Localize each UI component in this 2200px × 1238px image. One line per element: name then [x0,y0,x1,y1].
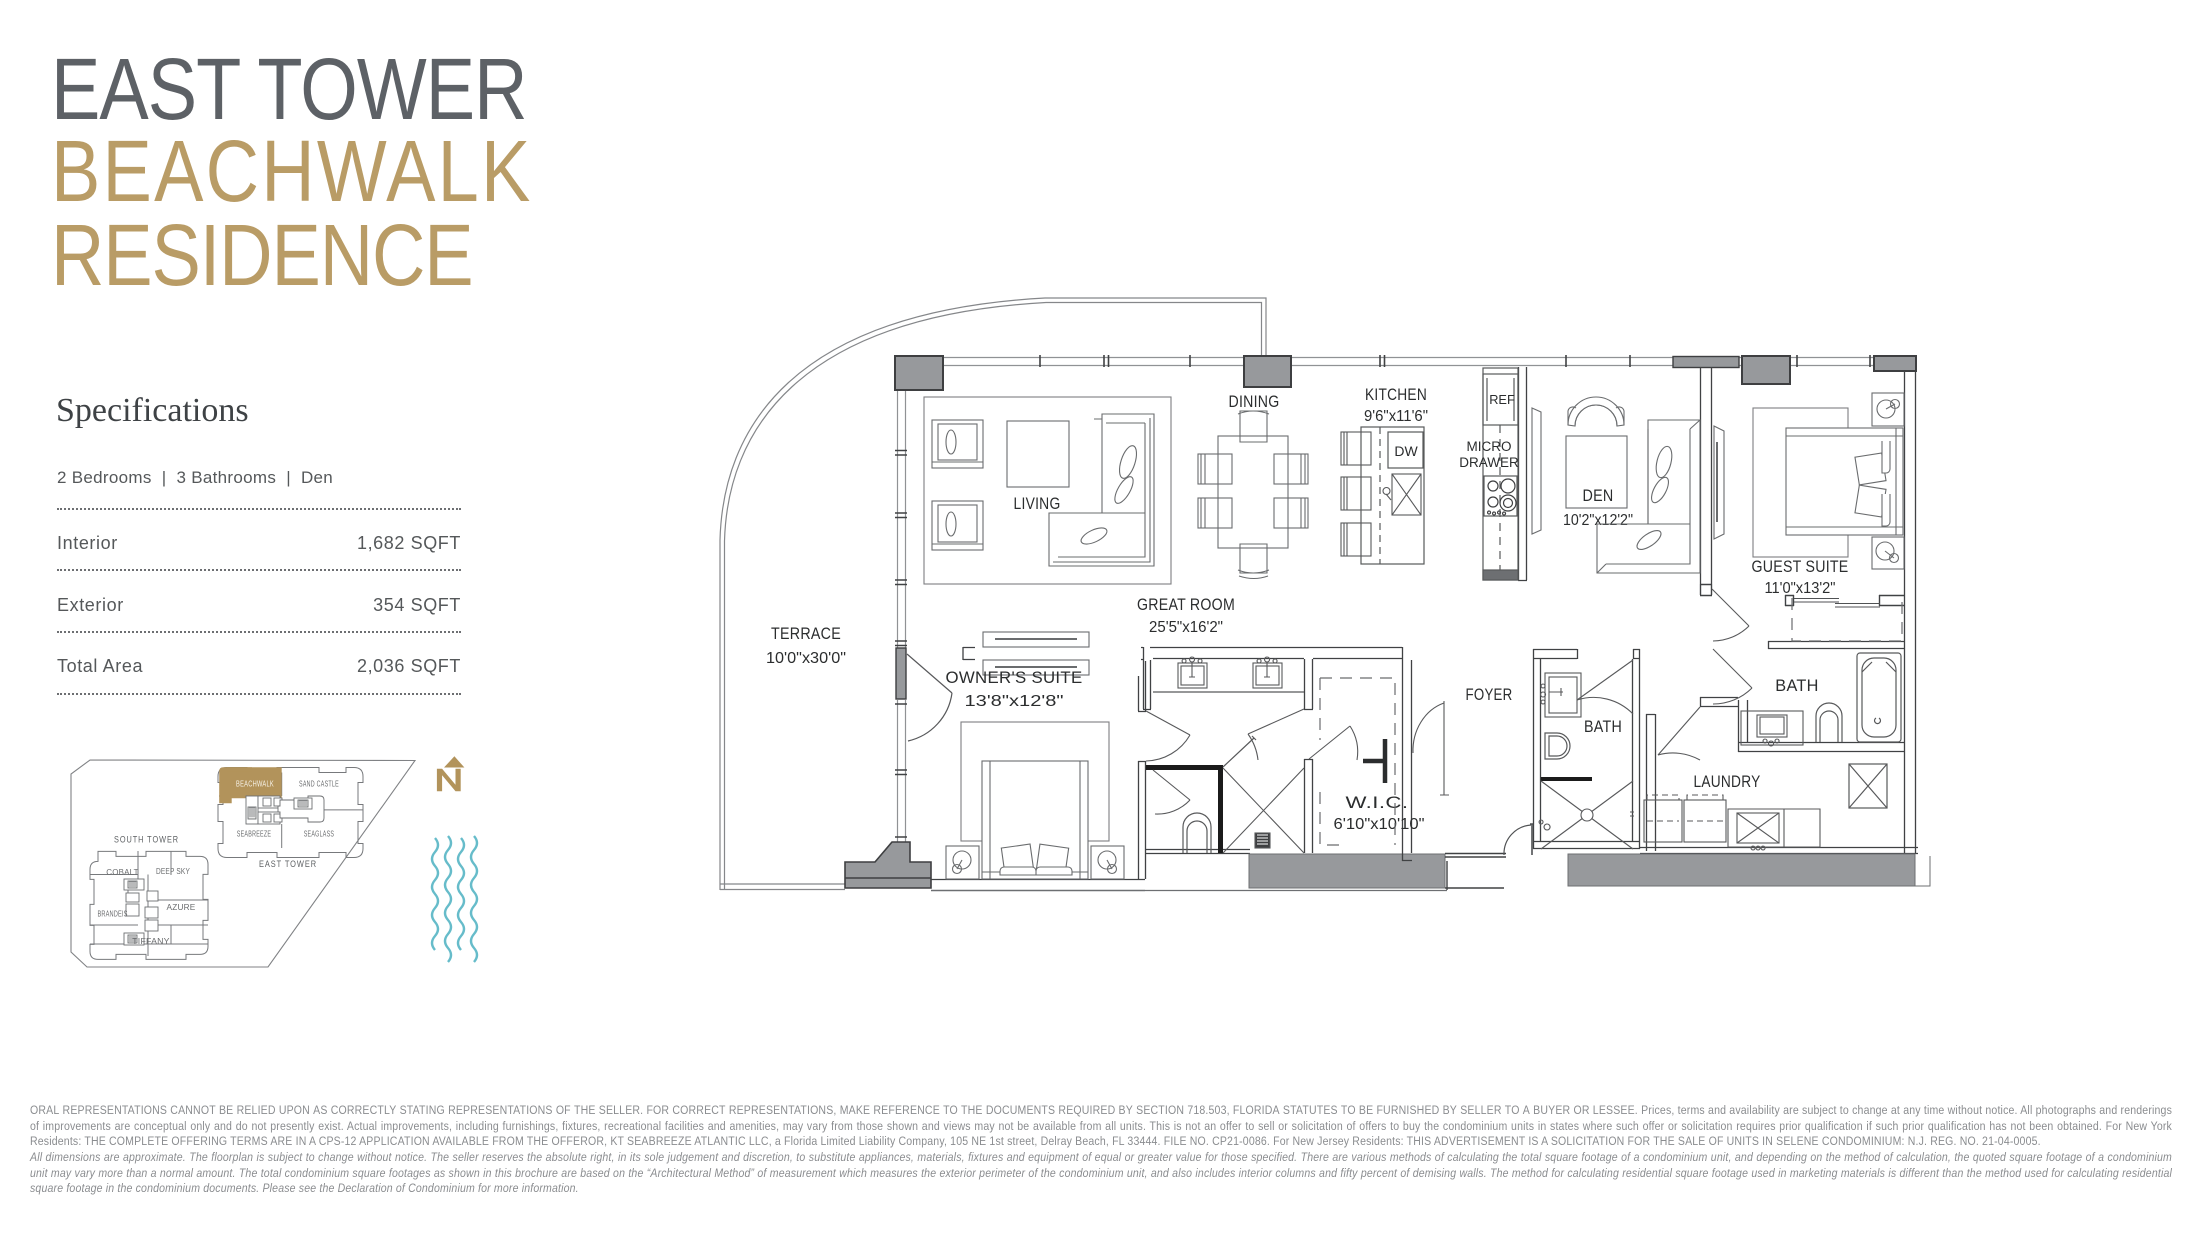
svg-text:6'10"x10'10": 6'10"x10'10" [1334,816,1425,833]
svg-text:TIFFANY: TIFFANY [132,937,170,946]
svg-text:TERRACE: TERRACE [771,625,841,643]
svg-text:13'8"x12'8": 13'8"x12'8" [965,693,1064,710]
svg-text:LIVING: LIVING [1014,495,1061,513]
svg-text:25'5"x16'2": 25'5"x16'2" [1149,619,1223,636]
svg-text:BATH: BATH [1584,718,1622,736]
svg-text:BRANDEIS: BRANDEIS [98,910,128,919]
svg-text:EAST TOWER: EAST TOWER [259,859,317,870]
svg-text:DEN: DEN [1583,487,1614,505]
svg-text:AZURE: AZURE [167,903,196,912]
svg-text:SEABREEZE: SEABREEZE [237,830,272,839]
svg-text:9'6"x11'6": 9'6"x11'6" [1364,408,1428,425]
svg-text:GREAT ROOM: GREAT ROOM [1137,596,1235,614]
svg-text:10'2"x12'2": 10'2"x12'2" [1563,512,1633,529]
svg-text:DEEP SKY: DEEP SKY [156,867,190,876]
svg-text:10'0"x30'0": 10'0"x30'0" [766,650,846,667]
svg-text:FOYER: FOYER [1466,686,1513,704]
svg-text:BATH: BATH [1775,677,1818,695]
svg-text:W.I.C.: W.I.C. [1346,794,1409,812]
svg-text:DW: DW [1394,443,1418,459]
svg-text:GUEST SUITE: GUEST SUITE [1752,558,1849,576]
svg-text:REF: REF [1489,392,1515,407]
svg-text:DRAWER: DRAWER [1459,455,1519,470]
svg-text:SAND CASTLE: SAND CASTLE [299,780,339,789]
svg-text:MICRO: MICRO [1467,439,1512,454]
svg-text:SOUTH TOWER: SOUTH TOWER [114,835,179,846]
svg-text:SEAGLASS: SEAGLASS [304,830,335,839]
svg-text:LAUNDRY: LAUNDRY [1694,773,1761,791]
svg-text:KITCHEN: KITCHEN [1365,386,1427,404]
svg-text:OWNER'S SUITE: OWNER'S SUITE [946,669,1083,687]
svg-text:11'0"x13'2": 11'0"x13'2" [1765,580,1836,597]
svg-text:COBALT: COBALT [106,868,139,877]
svg-text:BEACHWALK: BEACHWALK [236,780,274,789]
svg-text:DINING: DINING [1229,393,1280,411]
